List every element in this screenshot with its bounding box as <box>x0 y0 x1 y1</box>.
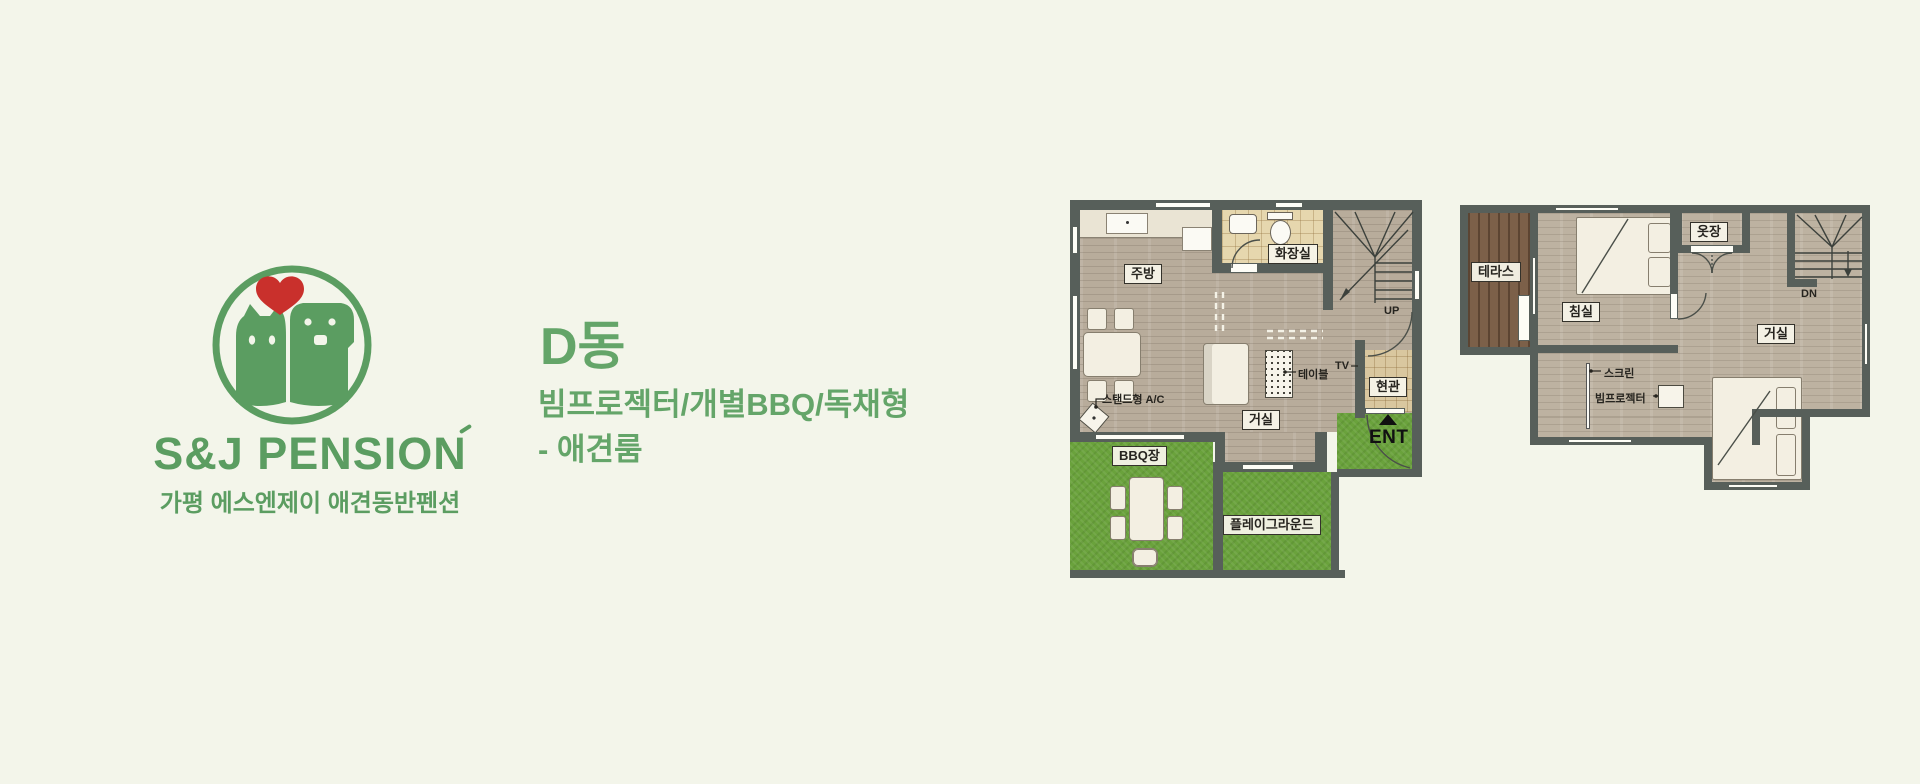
room-label-terrace: 테라스 <box>1471 262 1521 282</box>
room-label-closet: 옷장 <box>1690 222 1728 242</box>
sofa <box>1203 343 1249 405</box>
kitchen-appliance <box>1182 227 1212 251</box>
bbq-chair <box>1110 516 1126 540</box>
door-opening <box>1670 293 1678 319</box>
pension-logo-icon <box>210 256 382 434</box>
window <box>1518 295 1530 341</box>
living-table <box>1265 350 1293 398</box>
bbq-chair <box>1110 486 1126 510</box>
dining-table <box>1083 332 1141 377</box>
unit-description: 빔프로젝터/개별BBQ/독채형 - 애견룸 <box>538 382 909 472</box>
door-opening <box>1690 245 1734 253</box>
window <box>1414 270 1420 300</box>
unit-description-line1: 빔프로젝터/개별BBQ/독채형 <box>538 382 909 427</box>
brand-subtitle: 가평 에스엔제이 애견동반펜션 <box>118 483 502 518</box>
bbq-chair <box>1167 516 1183 540</box>
brand-name: S&J PENSION <box>118 428 502 480</box>
bbq-grill <box>1132 548 1158 567</box>
unit-title: D동 <box>540 304 625 379</box>
room-label-living: 거실 <box>1242 410 1280 430</box>
window <box>1072 295 1078 370</box>
room-label-living2: 거실 <box>1757 324 1795 344</box>
projector-unit <box>1658 385 1684 408</box>
room-label-bathroom: 화장실 <box>1268 244 1318 264</box>
room-label-playground: 플레이그라운드 <box>1223 515 1321 535</box>
window <box>1864 323 1868 365</box>
room-label-bbq: BBQ장 <box>1112 446 1167 466</box>
window <box>1568 439 1632 443</box>
window <box>1555 207 1619 211</box>
wood-floor <box>1225 432 1315 464</box>
dining-chair <box>1087 308 1107 330</box>
dog-icon <box>290 303 354 406</box>
window <box>1095 434 1185 440</box>
banner: S&J PENSION 가평 에스엔제이 애견동반펜션 D동 빔프로젝터/개별B… <box>0 0 1920 784</box>
entrance-arrow-icon <box>1379 414 1397 425</box>
window <box>1532 257 1536 315</box>
toilet-icon <box>1270 220 1291 245</box>
bed-pillow <box>1648 257 1671 287</box>
bed-pillow <box>1648 223 1671 253</box>
room-label-bedroom: 침실 <box>1562 302 1600 322</box>
room-label-entrance: 현관 <box>1369 377 1407 397</box>
kitchen-faucet <box>1126 221 1129 224</box>
unit-description-line2: - 애견룸 <box>538 427 909 472</box>
window <box>1242 464 1294 470</box>
tag-table: 테이블 <box>1298 366 1328 382</box>
bed-pillow <box>1776 387 1796 429</box>
toilet-tank <box>1267 212 1293 220</box>
window <box>1155 202 1211 208</box>
bath-sink <box>1229 214 1257 234</box>
door-opening <box>1230 263 1258 273</box>
cat-icon <box>236 304 286 406</box>
window <box>1728 484 1778 488</box>
screen-line <box>1586 363 1590 429</box>
tag-projector: 빔프로젝터 <box>1595 390 1646 406</box>
tag-dn: DN <box>1801 288 1817 300</box>
tag-screen: 스크린 <box>1604 365 1634 381</box>
bed-pillow <box>1776 434 1796 476</box>
window <box>1275 202 1303 208</box>
tag-up: UP <box>1384 305 1399 317</box>
room-label-kitchen: 주방 <box>1124 264 1162 284</box>
dining-chair <box>1114 308 1134 330</box>
bbq-table <box>1129 477 1164 541</box>
bbq-chair <box>1167 486 1183 510</box>
window <box>1072 226 1078 254</box>
floorplan-1f: 주방 화장실 거실 현관 BBQ장 플레이그라운드 스탠드형 A/C TV 테이… <box>1070 200 1422 580</box>
tag-ent: ENT <box>1369 427 1409 449</box>
tag-tv: TV <box>1335 360 1349 372</box>
floorplan-2f: 테라스 침실 옷장 거실 DN 스크린 빔프로젝터 <box>1460 205 1880 492</box>
tag-ac: 스탠드형 A/C <box>1102 391 1164 407</box>
